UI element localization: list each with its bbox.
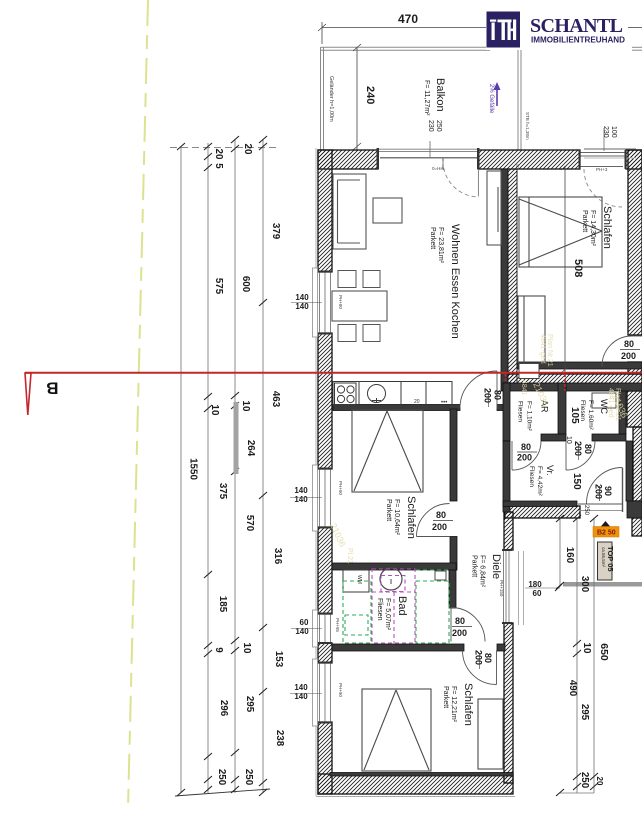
svg-text:4841: 4841 bbox=[520, 380, 527, 396]
svg-text:80: 80 bbox=[455, 616, 465, 626]
svg-text:Vr.: Vr. bbox=[545, 465, 555, 476]
svg-text:F= 5,07m²: F= 5,07m² bbox=[384, 598, 391, 631]
svg-text:80: 80 bbox=[624, 339, 634, 349]
svg-text:Bad: Bad bbox=[396, 596, 408, 616]
svg-text:470: 470 bbox=[398, 12, 418, 26]
svg-text:490: 490 bbox=[567, 680, 578, 697]
svg-text:Schlafen: Schlafen bbox=[462, 683, 474, 726]
svg-text:200: 200 bbox=[474, 650, 484, 665]
svg-text:F= 23,81m²: F= 23,81m² bbox=[437, 227, 444, 264]
svg-text:575: 575 bbox=[213, 278, 224, 295]
svg-text:508: 508 bbox=[572, 259, 584, 277]
svg-text:F= 14,30m²: F= 14,30m² bbox=[589, 210, 596, 247]
svg-text:10: 10 bbox=[581, 643, 592, 654]
svg-text:463: 463 bbox=[270, 391, 281, 408]
svg-text:240: 240 bbox=[364, 86, 376, 104]
svg-text:F= 10,64m²: F= 10,64m² bbox=[393, 499, 400, 536]
svg-text:PH+3: PH+3 bbox=[596, 167, 608, 172]
svg-text:80: 80 bbox=[483, 653, 493, 663]
svg-text:200: 200 bbox=[621, 351, 636, 361]
svg-text:•••: ••• bbox=[441, 400, 447, 406]
svg-text:200: 200 bbox=[573, 441, 583, 456]
svg-text:90: 90 bbox=[603, 486, 613, 496]
svg-text:Parkett: Parkett bbox=[442, 686, 449, 708]
svg-text:PH+150: PH+150 bbox=[499, 580, 504, 597]
svg-text:295: 295 bbox=[244, 696, 255, 713]
svg-text:20: 20 bbox=[242, 144, 253, 155]
svg-text:250: 250 bbox=[579, 772, 590, 789]
svg-text:STB h=1,38m: STB h=1,38m bbox=[525, 112, 530, 140]
svg-text:200: 200 bbox=[452, 628, 467, 638]
svg-text:150: 150 bbox=[571, 473, 582, 490]
svg-text:295: 295 bbox=[579, 704, 590, 721]
svg-text:200: 200 bbox=[517, 453, 532, 463]
svg-text:10: 10 bbox=[241, 643, 252, 654]
svg-text:B: B bbox=[46, 379, 58, 398]
svg-text:20: 20 bbox=[595, 777, 604, 786]
svg-text:570: 570 bbox=[244, 515, 255, 532]
svg-text:Balkon: Balkon bbox=[434, 78, 446, 112]
svg-text:316: 316 bbox=[272, 548, 283, 565]
svg-text:IMMOBILIENTREUHAND: IMMOBILIENTREUHAND bbox=[531, 35, 625, 45]
svg-text:Parkett: Parkett bbox=[581, 210, 588, 232]
svg-text:140: 140 bbox=[294, 683, 308, 692]
svg-text:Pl.21: Pl.21 bbox=[346, 548, 353, 564]
svg-text:B2 50: B2 50 bbox=[597, 530, 616, 537]
svg-text:250: 250 bbox=[435, 120, 442, 132]
svg-text:Schlafen: Schlafen bbox=[405, 496, 417, 539]
svg-text:250: 250 bbox=[216, 769, 227, 786]
svg-text:Parkett: Parkett bbox=[385, 499, 392, 521]
svg-text:375: 375 bbox=[217, 483, 228, 500]
svg-text:200: 200 bbox=[594, 484, 604, 499]
svg-text:10: 10 bbox=[240, 401, 251, 412]
svg-text:4841-ged: 4841-ged bbox=[539, 334, 546, 364]
svg-text:5: 5 bbox=[213, 163, 224, 169]
svg-text:10: 10 bbox=[209, 405, 220, 416]
svg-text:TOP 05: TOP 05 bbox=[606, 546, 615, 572]
svg-text:Geländer h=1,00m: Geländer h=1,00m bbox=[328, 76, 334, 122]
svg-text:Wohnen Essen Kochen: Wohnen Essen Kochen bbox=[449, 224, 461, 339]
svg-text:PH+80: PH+80 bbox=[338, 295, 343, 309]
svg-text:230: 230 bbox=[427, 120, 434, 132]
svg-text:F= 4,42m²: F= 4,42m² bbox=[536, 466, 543, 497]
svg-text:140: 140 bbox=[295, 302, 309, 311]
svg-text:F= 11,27m²: F= 11,27m² bbox=[423, 80, 430, 116]
svg-text:Plan Nr.21: Plan Nr.21 bbox=[546, 334, 553, 367]
svg-text:80: 80 bbox=[436, 510, 446, 520]
svg-text:10: 10 bbox=[565, 436, 572, 444]
svg-text:300: 300 bbox=[579, 576, 590, 593]
svg-text:140: 140 bbox=[294, 486, 308, 495]
svg-text:Fliesen: Fliesen bbox=[517, 401, 524, 422]
svg-text:F= 1,10m²: F= 1,10m² bbox=[526, 401, 533, 432]
svg-text:PH+90: PH+90 bbox=[338, 683, 343, 697]
svg-text:60: 60 bbox=[300, 618, 309, 627]
svg-text:80: 80 bbox=[521, 442, 531, 452]
svg-text:80: 80 bbox=[583, 444, 593, 454]
svg-text:F= 6,84m²: F= 6,84m² bbox=[479, 555, 486, 588]
svg-text:600: 600 bbox=[240, 276, 251, 293]
svg-text:140: 140 bbox=[295, 293, 309, 302]
svg-text:185: 185 bbox=[217, 596, 228, 613]
svg-text:264: 264 bbox=[245, 440, 256, 457]
svg-text:250: 250 bbox=[583, 505, 589, 516]
svg-text:Schlafen: Schlafen bbox=[601, 206, 613, 249]
svg-text:238: 238 bbox=[274, 730, 285, 747]
svg-text:20: 20 bbox=[213, 149, 224, 160]
svg-text:140: 140 bbox=[294, 495, 308, 504]
svg-text:Diele: Diele bbox=[490, 554, 502, 579]
svg-text:250: 250 bbox=[243, 769, 254, 786]
svg-text:F= 1,60m²: F= 1,60m² bbox=[587, 400, 594, 431]
svg-text:Parkett: Parkett bbox=[471, 555, 478, 577]
svg-text:ca.55,5m²: ca.55,5m² bbox=[601, 547, 606, 568]
svg-text:153: 153 bbox=[273, 651, 284, 668]
svg-text:20: 20 bbox=[414, 399, 420, 405]
svg-text:9: 9 bbox=[213, 647, 224, 653]
svg-text:105: 105 bbox=[569, 407, 580, 424]
svg-text:180: 180 bbox=[528, 580, 542, 589]
svg-text:379: 379 bbox=[270, 223, 281, 240]
svg-text:60: 60 bbox=[533, 589, 542, 598]
svg-text:WM: WM bbox=[356, 575, 362, 584]
svg-text:160: 160 bbox=[564, 547, 575, 564]
svg-text:80: 80 bbox=[493, 390, 503, 400]
svg-text:230: 230 bbox=[602, 126, 609, 138]
svg-text:1550: 1550 bbox=[188, 458, 199, 480]
svg-text:Parkett: Parkett bbox=[429, 227, 436, 249]
svg-text:S2: S2 bbox=[515, 164, 520, 170]
svg-text:296: 296 bbox=[218, 700, 229, 717]
svg-text:100: 100 bbox=[610, 126, 617, 138]
svg-text:Fliesen: Fliesen bbox=[528, 466, 535, 487]
svg-text:F= 12,21m²: F= 12,21m² bbox=[450, 686, 457, 723]
svg-text:PH+95: PH+95 bbox=[335, 618, 340, 632]
svg-text:PH+90: PH+90 bbox=[338, 481, 343, 495]
svg-text:4841-ged: 4841-ged bbox=[607, 388, 614, 418]
svg-text:Fliesen: Fliesen bbox=[376, 598, 383, 621]
svg-text:200: 200 bbox=[432, 522, 447, 532]
svg-text:650: 650 bbox=[598, 643, 610, 661]
svg-text:200: 200 bbox=[483, 388, 493, 403]
svg-text:2% Gefälle: 2% Gefälle bbox=[488, 84, 494, 114]
